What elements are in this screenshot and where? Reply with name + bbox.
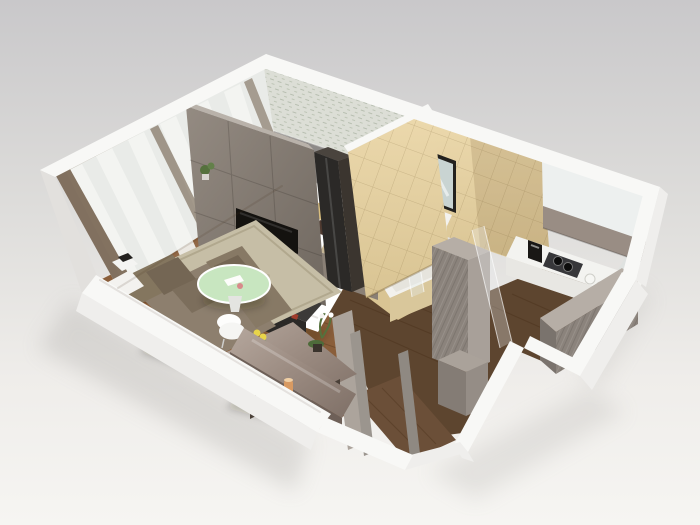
- table-decor: [237, 283, 243, 289]
- apartment-render: 3D isometric cutaway rendering of a one-…: [0, 0, 700, 525]
- kettle: [585, 274, 595, 284]
- burner: [554, 257, 563, 266]
- burner: [564, 263, 573, 272]
- floorplan-3d-canvas: 3D isometric cutaway rendering of a one-…: [0, 0, 700, 525]
